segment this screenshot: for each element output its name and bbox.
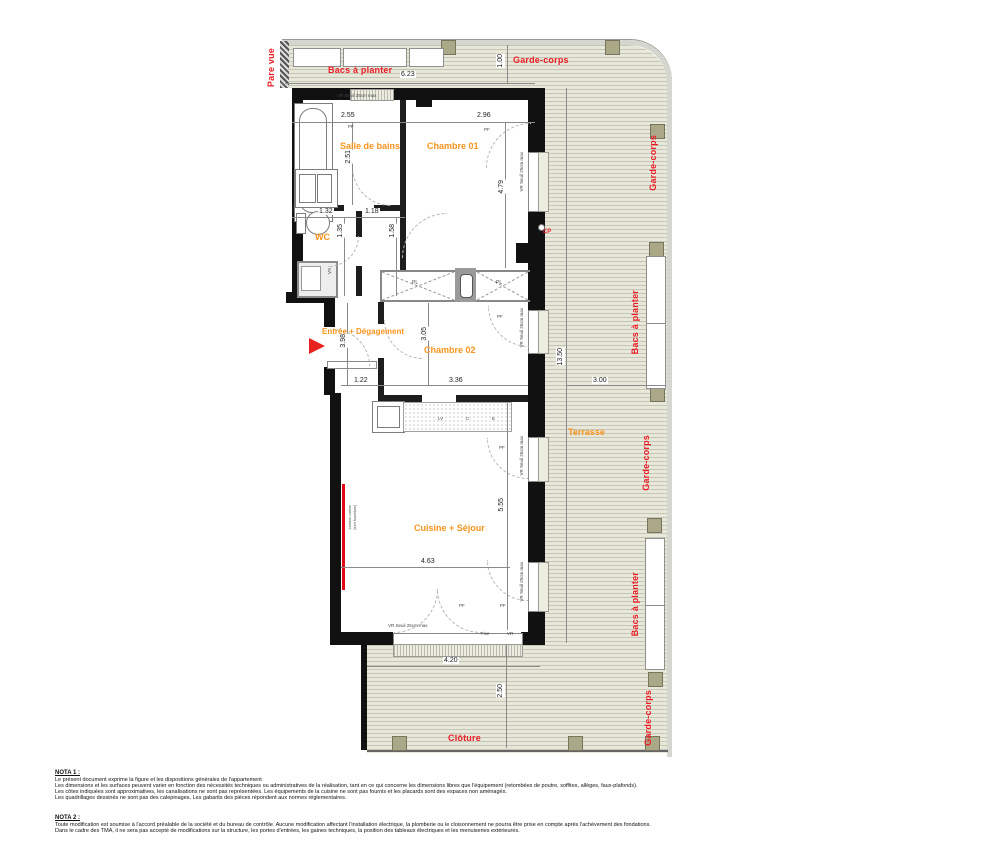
dim-line — [428, 303, 429, 385]
dim-label: 6.23 — [400, 71, 416, 78]
dim-line — [367, 666, 540, 667]
closet-cross — [382, 272, 454, 300]
pf-note: PF — [459, 603, 465, 608]
dim-line — [505, 122, 506, 268]
utility-label: VS — [327, 268, 332, 274]
planter-box — [645, 538, 665, 606]
guardrail-post — [649, 242, 664, 257]
planter-box — [645, 605, 665, 670]
garde-corps-label: Garde-corps — [513, 55, 569, 65]
nota-1-title: NOTA 1 : — [55, 770, 955, 777]
wall — [330, 632, 393, 645]
room-label-cuisine-sejour: Cuisine + Séjour — [414, 523, 485, 533]
vanity-basin — [317, 174, 332, 203]
window-note: VR Seuil 25cm max — [519, 436, 524, 476]
entry-arrow — [309, 338, 325, 354]
wall — [528, 480, 545, 562]
planter-box — [646, 256, 666, 324]
kitchen-label-c: C — [466, 416, 469, 421]
dim-label: 3.05 — [420, 327, 429, 341]
dim-label: 4.63 — [420, 558, 436, 565]
planter-box — [409, 48, 444, 67]
dim-label: 1.00 — [496, 54, 505, 68]
dim-label: 1.35 — [336, 224, 345, 238]
dim-line — [507, 45, 508, 83]
window-sill — [538, 310, 549, 354]
dim-label: 5.55 — [497, 498, 506, 512]
wall — [528, 352, 545, 437]
window-sill — [538, 152, 549, 212]
utility-inner — [301, 266, 321, 291]
dim-line — [292, 122, 535, 123]
dim-line — [506, 645, 507, 748]
dim-label: 1.58 — [388, 224, 397, 238]
partition — [356, 211, 362, 237]
dim-label: 2.96 — [476, 112, 492, 119]
room-label-entree: Entrée + Dégagement — [322, 327, 404, 336]
closet-cross — [477, 272, 528, 300]
window-sill — [538, 437, 549, 482]
wall-pilaster — [516, 243, 528, 263]
fence-post — [392, 736, 407, 751]
dim-label: 13.50 — [556, 348, 565, 366]
ep-pipe — [538, 224, 545, 231]
nota-1-line: Les quadrillages dessinés ne sont pas de… — [55, 795, 955, 801]
partition — [356, 266, 362, 296]
window-sill — [538, 562, 549, 612]
partition — [378, 358, 384, 398]
partition — [456, 395, 528, 402]
pf-note: PF — [499, 445, 505, 450]
pf-note: PF — [500, 603, 506, 608]
window-note: VR Seuil 25cm max — [388, 623, 428, 628]
partition — [400, 100, 406, 212]
window-note: VR Seuil 25cm max — [519, 152, 524, 192]
garde-corps-label: Garde-corps — [643, 690, 653, 746]
kitchen-counter — [403, 402, 512, 432]
window-note-fixe: Fixe — [481, 631, 490, 636]
closet-label: PL — [496, 281, 502, 286]
wall — [292, 88, 538, 100]
pf-note: PF — [484, 127, 490, 132]
garde-corps-label: Garde-corps — [648, 135, 658, 191]
terrasse-label: Terrasse — [568, 427, 605, 437]
dim-line — [341, 385, 528, 386]
dim-line — [341, 567, 510, 568]
room-label-chambre-02: Chambre 02 — [424, 345, 476, 355]
kitchen-appliance-inner — [377, 406, 400, 428]
wall — [361, 645, 367, 750]
ep-label: EP — [543, 229, 551, 235]
kitchen-label-e: E — [492, 416, 495, 421]
dim-label: 1.22 — [353, 377, 369, 384]
guardrail-post — [647, 518, 662, 533]
planter-box — [646, 323, 666, 389]
dim-label: 3.00 — [592, 377, 608, 384]
room-label-chambre-01: Chambre 01 — [427, 141, 479, 151]
bacs-a-planter-label: Bacs à planter — [630, 290, 640, 354]
pf-note: PF — [497, 314, 503, 319]
nota-1: NOTA 1 : Le présent document exprime la … — [55, 770, 955, 801]
red-line-note: (hors fourniture) — [353, 505, 358, 530]
bacs-a-planter-label: Bacs à planter — [328, 65, 392, 75]
nota-2-title: NOTA 2 : — [55, 815, 955, 822]
guardrail-post — [648, 672, 663, 687]
dim-line — [292, 217, 405, 218]
wall — [330, 393, 341, 645]
wall — [324, 367, 335, 395]
wall — [324, 303, 335, 327]
garde-corps-label: Garde-corps — [641, 435, 651, 491]
dim-label: 2.51 — [344, 150, 353, 164]
fence-post — [568, 736, 583, 751]
dim-label: 3.98 — [339, 334, 348, 348]
wall-pilaster — [416, 99, 432, 107]
wall — [528, 610, 545, 645]
cloture-label: Clôture — [448, 733, 481, 743]
floor-plan: PL PL LV C E VS Linéaire cuisine (hors f… — [0, 0, 1000, 857]
dim-line — [566, 385, 665, 386]
nota-2-line: Dans le cadre des TMA, il ne sera pas ac… — [55, 828, 955, 834]
fence-line — [367, 750, 668, 752]
nota-2: NOTA 2 : Toute modification est soumise … — [55, 815, 955, 834]
bacs-a-planter-label: Bacs à planter — [630, 572, 640, 636]
dim-label: 2.55 — [340, 112, 356, 119]
kitchen-label-lv: LV — [438, 416, 443, 421]
pare-vue-screen — [280, 41, 289, 88]
dim-label: 1.18 — [364, 208, 380, 215]
window-note: VR Seuil 25cm max — [337, 93, 377, 98]
window-note: VR Seuil 25cm max — [519, 562, 524, 602]
guardrail-post — [605, 40, 620, 55]
dim-line — [507, 403, 508, 630]
guardrail-post — [650, 387, 665, 402]
dim-label: 4.20 — [443, 657, 459, 664]
room-label-wc: WC — [315, 232, 330, 242]
room-label-salle-de-bains: Salle de bains — [340, 141, 400, 151]
pare-vue-label: Pare vue — [266, 48, 276, 87]
dim-label: 1.32 — [318, 208, 334, 215]
dim-line — [566, 88, 567, 643]
closet-label: PL — [412, 281, 418, 286]
kitchen-red-line — [342, 484, 345, 590]
window-note: VR Seuil 25cm max — [519, 308, 524, 348]
dim-line — [285, 83, 535, 84]
pf-note: PF — [348, 124, 354, 129]
dim-label: 2.50 — [496, 684, 505, 698]
duct-inner — [460, 274, 473, 298]
dim-label: 4.79 — [497, 180, 506, 194]
window-note-vr: VR — [507, 631, 513, 636]
dim-label: 3.36 — [448, 377, 464, 384]
vanity-basin — [299, 174, 316, 203]
window-sill — [393, 644, 523, 657]
